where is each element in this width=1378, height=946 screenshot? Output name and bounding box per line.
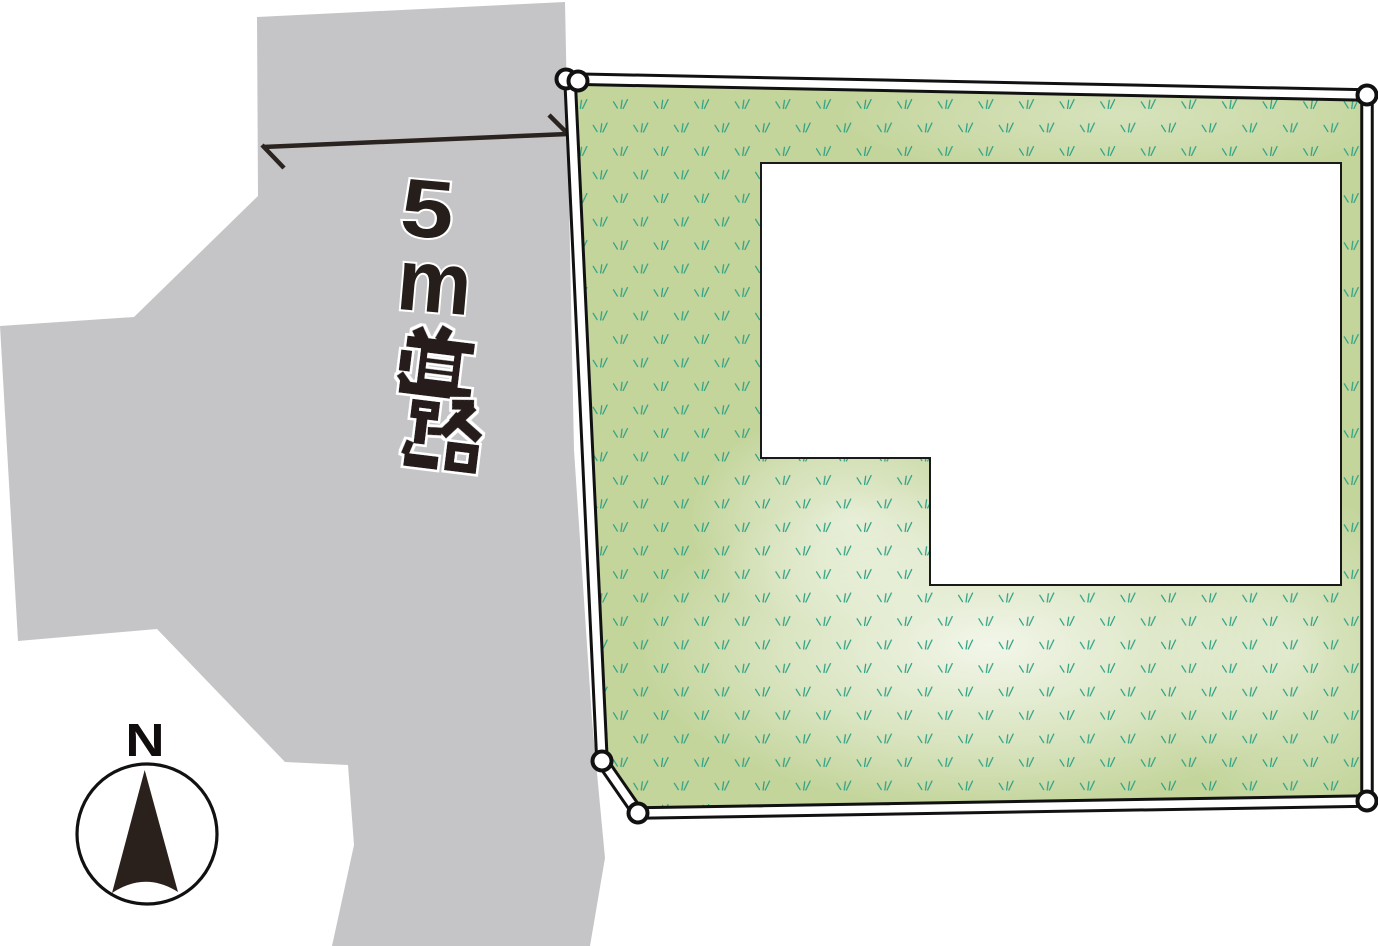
svg-text:N: N xyxy=(125,714,164,766)
svg-text:m: m xyxy=(393,230,476,335)
